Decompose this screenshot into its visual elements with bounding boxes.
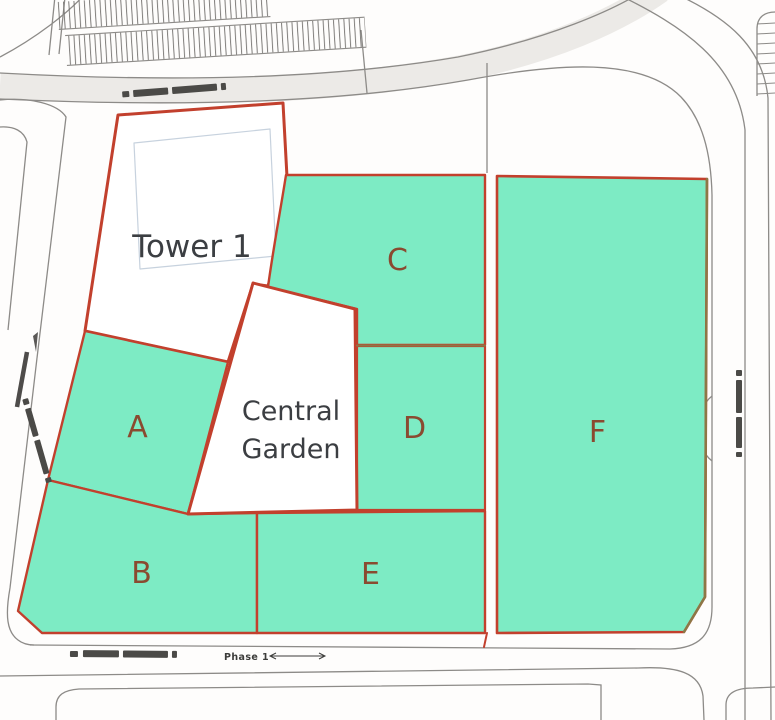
left-strip-inner xyxy=(0,127,27,330)
tower-1-label: Tower 1 xyxy=(131,229,251,265)
lane-tick xyxy=(484,633,487,647)
south-block-right xyxy=(726,687,775,720)
left-road-structure xyxy=(33,332,38,352)
bottom-road-name-illegible xyxy=(70,650,177,658)
parking-left-end-a xyxy=(49,0,55,55)
phase-arrow xyxy=(270,653,325,659)
ramp-hatches xyxy=(757,23,775,94)
parcel-f xyxy=(497,176,707,633)
central-garden-label-line1: Central xyxy=(242,396,340,427)
parcel-a-label: A xyxy=(127,410,149,445)
parcel-b-label: B xyxy=(131,556,153,591)
site-plan-canvas: Tower 1 Central Garden A B C D E F Phase… xyxy=(0,0,775,720)
parcel-e-label: E xyxy=(361,557,381,592)
south-block-left xyxy=(56,684,601,720)
site-plan-map: Tower 1 Central Garden A B C D E F Phase… xyxy=(0,0,775,720)
right-road-name-illegible xyxy=(736,370,742,457)
central-garden-label-line2: Garden xyxy=(242,434,341,465)
phase-label: Phase 1 xyxy=(224,652,269,663)
parcel-f-label: F xyxy=(589,415,607,450)
left-strip-outer xyxy=(0,99,66,358)
parcel-d-label: D xyxy=(403,411,427,446)
bottom-road-lower-edge xyxy=(0,668,704,720)
parcel-c-label: C xyxy=(387,243,409,278)
